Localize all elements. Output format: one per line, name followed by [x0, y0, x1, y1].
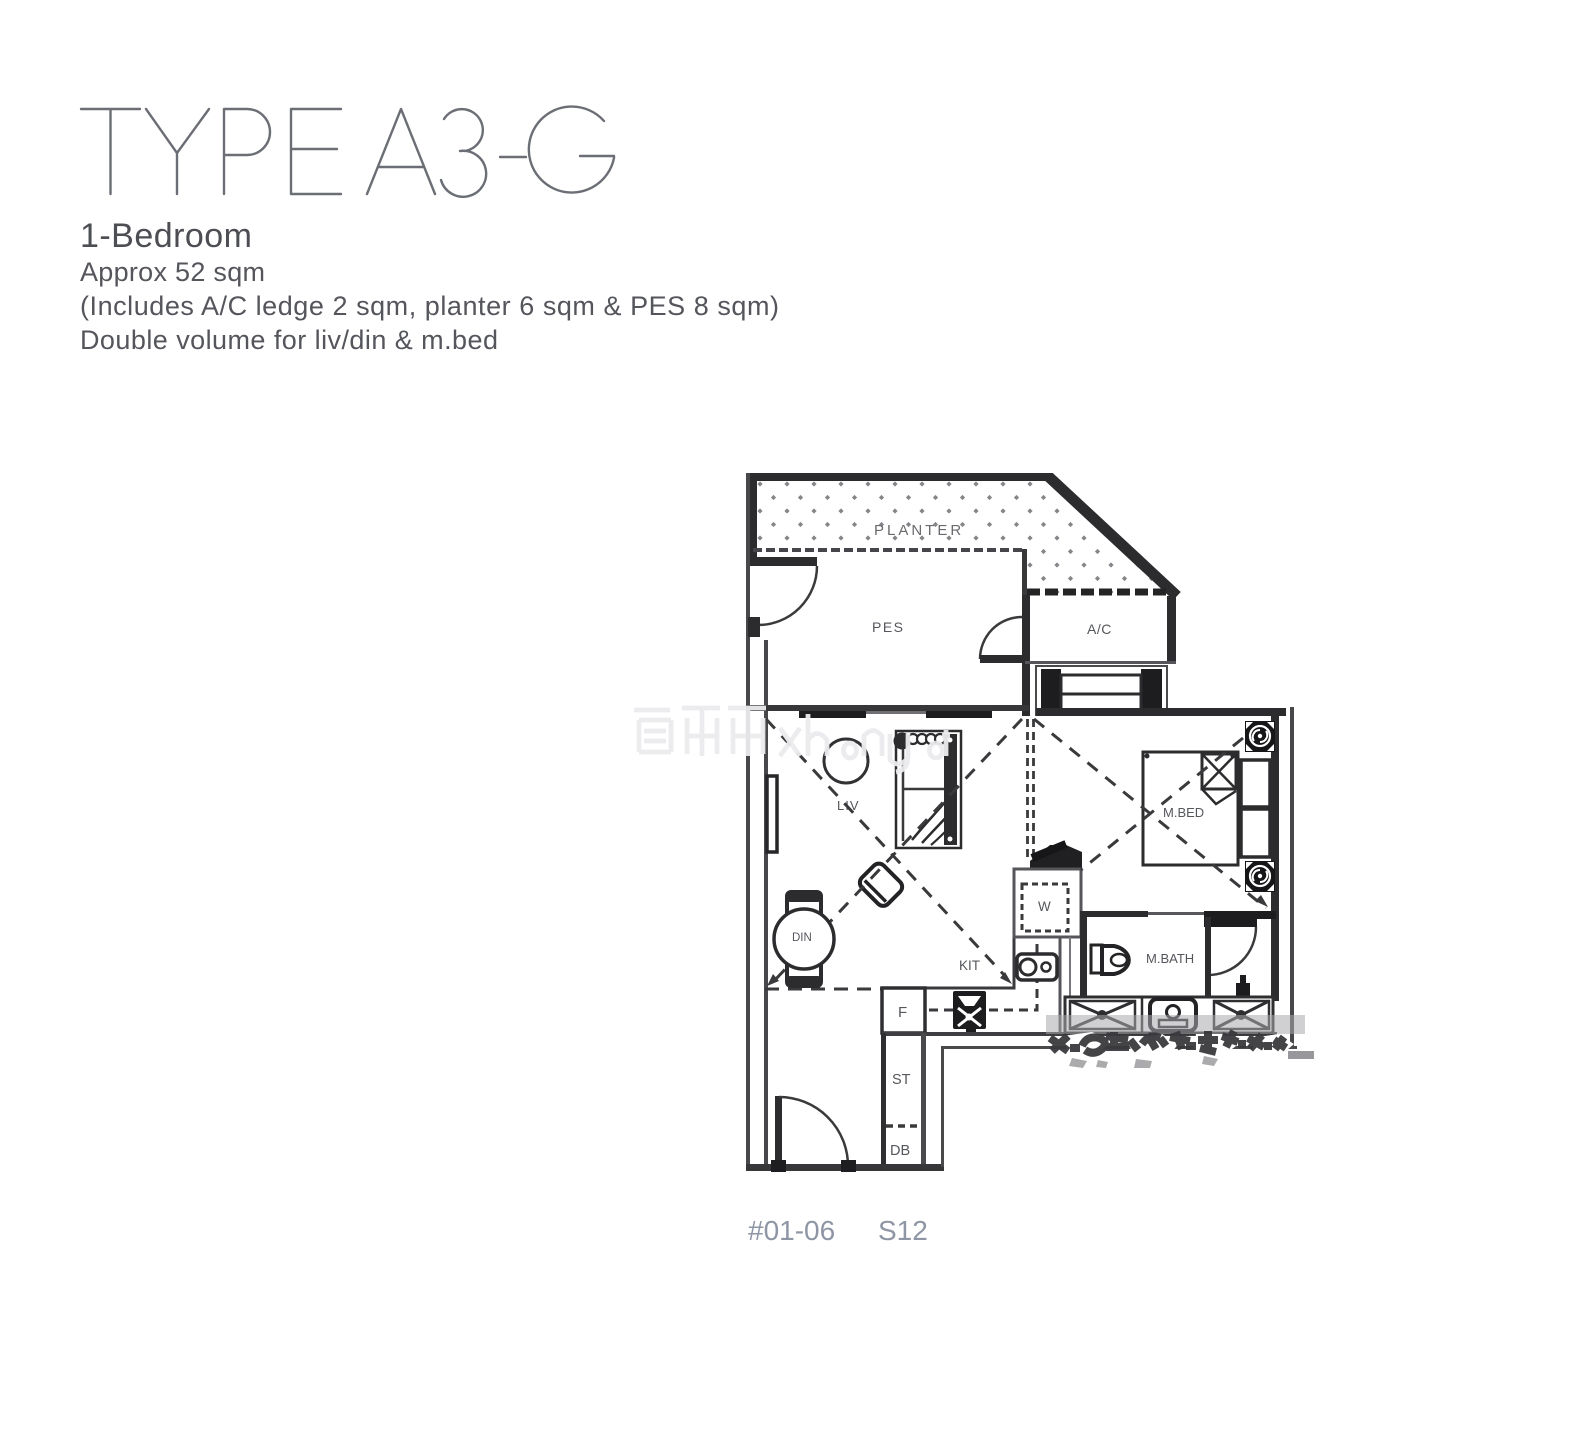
svg-text:PES: PES: [872, 619, 905, 635]
svg-text:A/C: A/C: [1087, 621, 1112, 637]
svg-text:PLANTER: PLANTER: [874, 522, 964, 539]
svg-text:DIN: DIN: [792, 932, 812, 944]
svg-text:ST: ST: [892, 1072, 911, 1088]
svg-text:1-Bedroom: 1-Bedroom: [80, 217, 252, 255]
svg-text:KIT: KIT: [959, 958, 980, 973]
svg-text:S12: S12: [878, 1215, 928, 1246]
svg-text:W: W: [1038, 899, 1051, 914]
svg-text:M.BED: M.BED: [1163, 805, 1204, 820]
svg-text:Approx 52 sqm: Approx 52 sqm: [80, 257, 265, 287]
svg-text:F: F: [898, 1004, 907, 1021]
svg-text:Double volume for liv/din & m.: Double volume for liv/din & m.bed: [80, 325, 498, 355]
svg-text:(Includes A/C ledge 2 sqm, pla: (Includes A/C ledge 2 sqm, planter 6 sqm…: [80, 291, 779, 321]
svg-text:M.BATH: M.BATH: [1146, 951, 1194, 966]
svg-text:#01-06: #01-06: [748, 1215, 835, 1246]
svg-text:DB: DB: [890, 1143, 910, 1159]
